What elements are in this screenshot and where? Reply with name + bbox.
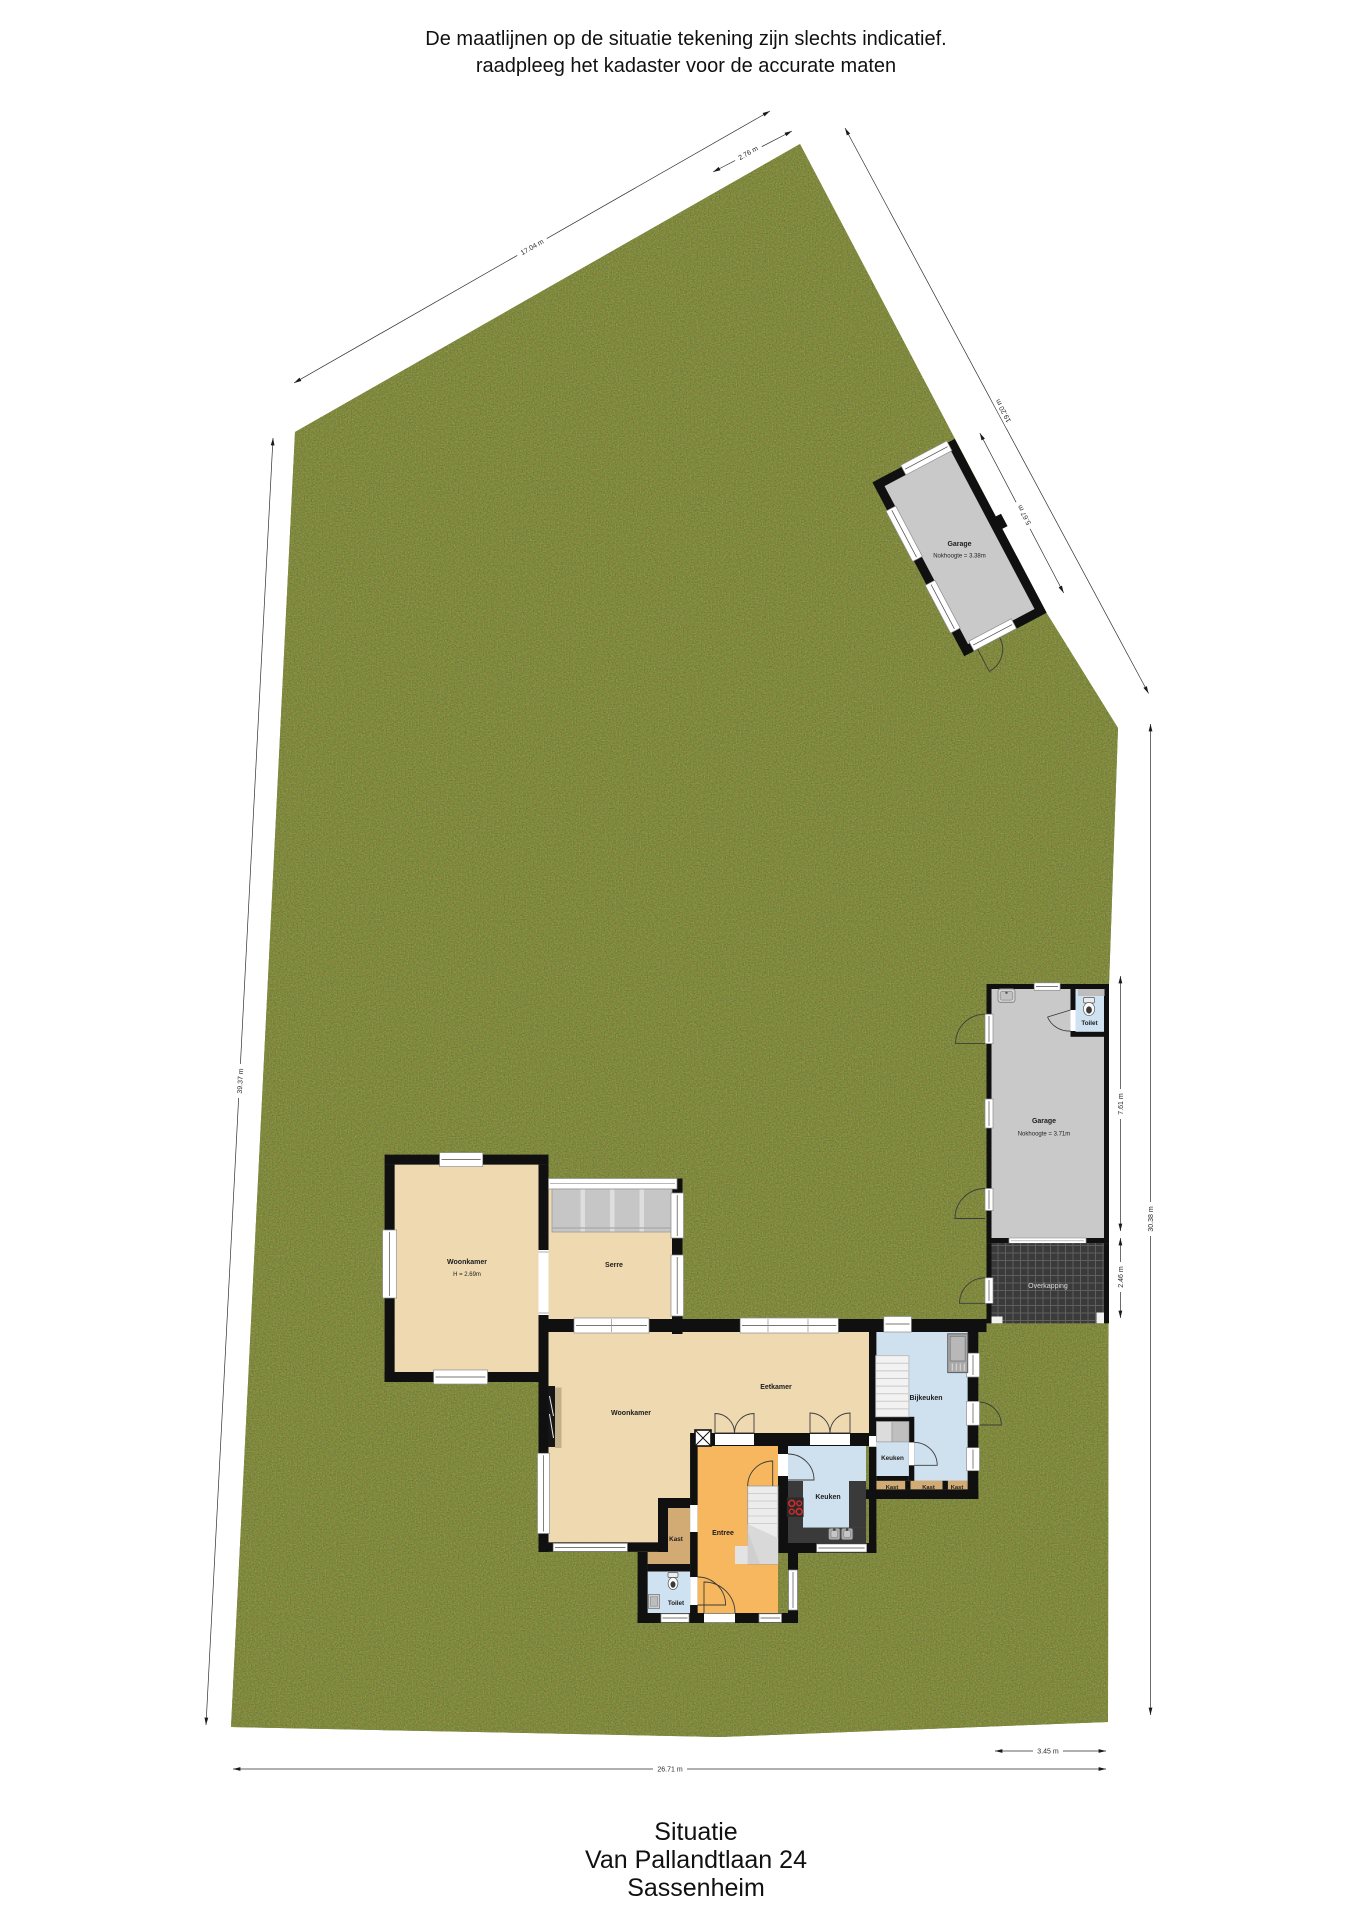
svg-text:H = 2.69m: H = 2.69m — [453, 1272, 481, 1278]
svg-text:Kast: Kast — [886, 1485, 899, 1491]
svg-text:Woonkamer: Woonkamer — [447, 1259, 487, 1266]
svg-text:Kast: Kast — [951, 1485, 964, 1491]
svg-text:3.45 m: 3.45 m — [1037, 1749, 1059, 1756]
svg-text:Nokhoogte = 3.38m: Nokhoogte = 3.38m — [933, 554, 986, 560]
svg-text:Serre: Serre — [605, 1262, 623, 1269]
svg-text:39.37 m: 39.37 m — [237, 1068, 245, 1094]
svg-text:Kast: Kast — [669, 1536, 684, 1543]
svg-text:Sassenheim: Sassenheim — [627, 1874, 765, 1902]
svg-text:De maatlijnen op de situatie t: De maatlijnen op de situatie tekening zi… — [425, 28, 946, 50]
svg-text:Woonkamer: Woonkamer — [611, 1410, 651, 1417]
svg-text:Kast: Kast — [922, 1485, 935, 1491]
svg-text:Toilet: Toilet — [668, 1600, 685, 1607]
svg-text:Keuken: Keuken — [815, 1494, 840, 1501]
svg-text:Van Pallandtlaan 24: Van Pallandtlaan 24 — [585, 1846, 807, 1874]
svg-text:2.46 m: 2.46 m — [1118, 1266, 1125, 1288]
svg-text:Keuken: Keuken — [881, 1455, 904, 1462]
svg-text:Toilet: Toilet — [1081, 1020, 1098, 1027]
svg-text:Entree: Entree — [712, 1530, 734, 1537]
svg-text:Bijkeuken: Bijkeuken — [909, 1395, 942, 1402]
svg-text:Overkapping: Overkapping — [1028, 1283, 1068, 1290]
svg-text:26.71 m: 26.71 m — [657, 1767, 682, 1774]
svg-text:raadpleeg het kadaster voor de: raadpleeg het kadaster voor de accurate … — [476, 55, 896, 77]
svg-text:Situatie: Situatie — [654, 1818, 737, 1846]
svg-text:Garage: Garage — [947, 541, 971, 548]
svg-text:30.38 m: 30.38 m — [1148, 1206, 1155, 1231]
svg-text:7.61 m: 7.61 m — [1118, 1093, 1125, 1115]
svg-text:Garage: Garage — [1032, 1118, 1056, 1125]
svg-text:Nokhoogte = 3.71m: Nokhoogte = 3.71m — [1018, 1132, 1071, 1138]
svg-text:Eetkamer: Eetkamer — [760, 1384, 792, 1391]
